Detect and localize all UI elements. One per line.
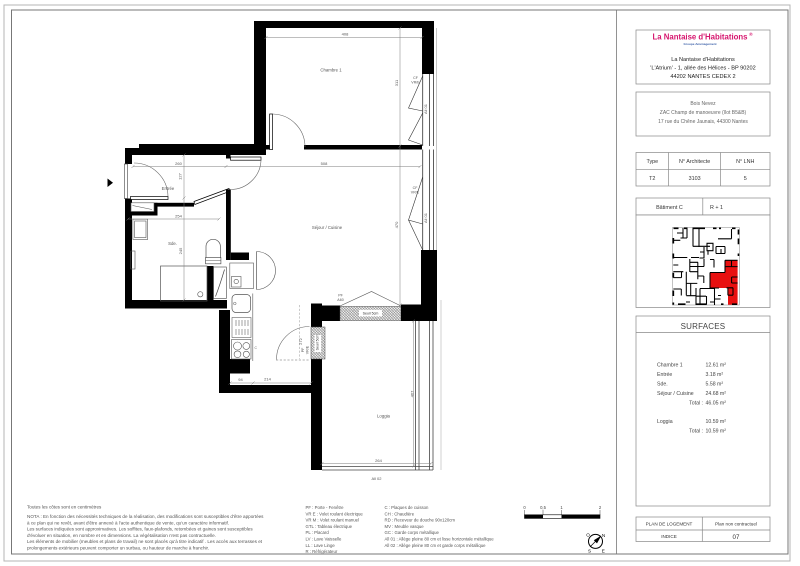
svg-text:N: N — [602, 533, 605, 538]
svg-text:R + 1: R + 1 — [710, 205, 723, 211]
svg-text:All 02: All 02 — [371, 476, 382, 481]
svg-text:311: 311 — [394, 79, 399, 86]
svg-text:Total :: Total : — [689, 400, 703, 406]
svg-text:All 01: All 01 — [423, 103, 428, 114]
svg-text:PLAN DE LOGEMENT: PLAN DE LOGEMENT — [646, 522, 693, 527]
svg-text:CF: CF — [413, 186, 419, 190]
svg-text:CF: CF — [413, 76, 419, 80]
svg-text:Seuil 5cm: Seuil 5cm — [316, 335, 320, 351]
svg-text:272: 272 — [298, 337, 303, 344]
svg-text:PF: PF — [301, 347, 305, 352]
svg-text:La Nantaise d'Habitations: La Nantaise d'Habitations — [652, 33, 748, 42]
svg-text:d'évoluer en situation, en nom: d'évoluer en situation, en nombre et en … — [27, 533, 216, 538]
svg-text:46.05 m²: 46.05 m² — [706, 400, 727, 406]
svg-text:467: 467 — [409, 390, 414, 397]
svg-text:LL : Lave Linge: LL : Lave Linge — [306, 543, 336, 548]
svg-text:0,5: 0,5 — [540, 505, 546, 510]
svg-text:'L'Atrium' - 1, allée des Héli: 'L'Atrium' - 1, allée des Hélices - BP 9… — [650, 66, 755, 72]
svg-text:VR/E: VR/E — [306, 345, 310, 354]
svg-text:R : Réfrigérateur: R : Réfrigérateur — [306, 549, 338, 554]
svg-text:Les éléments de mobilier (meub: Les éléments de mobilier (meubles et pla… — [27, 539, 263, 544]
svg-text:All 01 : Allège pleine 80 cm e: All 01 : Allège pleine 80 cm et lisse ho… — [385, 537, 495, 542]
svg-text:Entrée: Entrée — [162, 186, 175, 191]
svg-text:®: ® — [749, 31, 753, 38]
svg-text:VR/E: VR/E — [411, 81, 420, 85]
svg-text:Type: Type — [646, 159, 658, 165]
svg-text:12.61 m²: 12.61 m² — [706, 363, 727, 369]
svg-text:N° Architecte: N° Architecte — [679, 159, 710, 165]
svg-text:Chambre 1: Chambre 1 — [657, 363, 683, 369]
svg-text:PL : Placard: PL : Placard — [306, 530, 330, 535]
svg-text:5.58 m²: 5.58 m² — [706, 382, 724, 388]
svg-text:Toutes les côtes sont en centi: Toutes les côtes sont en centimètres — [27, 505, 102, 510]
svg-text:17 rue du Chêne Jaunais, 44300: 17 rue du Chêne Jaunais, 44300 Nantes — [658, 119, 748, 125]
svg-text:Plan non contractuel: Plan non contractuel — [715, 522, 757, 527]
svg-text:07: 07 — [733, 534, 740, 541]
svg-text:408: 408 — [342, 32, 349, 37]
svg-text:MV : Meuble vasque: MV : Meuble vasque — [385, 524, 425, 529]
svg-text:E: E — [602, 548, 605, 553]
svg-text:Sde.: Sde. — [168, 241, 177, 246]
svg-text:VR E : Volet roulant électriqu: VR E : Volet roulant électrique — [306, 511, 364, 516]
svg-text:214: 214 — [264, 377, 271, 382]
svg-text:Entrée: Entrée — [657, 372, 672, 378]
svg-text:10.59 m²: 10.59 m² — [706, 419, 727, 425]
svg-text:VR/E: VR/E — [411, 191, 420, 195]
svg-text:INDICE: INDICE — [661, 534, 677, 539]
svg-text:Total :: Total : — [689, 429, 703, 435]
svg-text:Séjour / Cuisine: Séjour / Cuisine — [657, 391, 694, 397]
svg-text:3.18 m²: 3.18 m² — [706, 372, 724, 378]
svg-text:N° LNH: N° LNH — [736, 159, 754, 165]
svg-text:GTL : Tableau électrique: GTL : Tableau électrique — [306, 524, 353, 529]
svg-text:Loggia: Loggia — [657, 419, 673, 425]
svg-text:ZAC Champ de manoeuvre (îlot B: ZAC Champ de manoeuvre (îlot B5&B) — [660, 110, 747, 116]
svg-text:Chambre 1: Chambre 1 — [320, 68, 342, 73]
svg-text:94: 94 — [238, 377, 243, 382]
svg-text:5: 5 — [744, 176, 747, 182]
svg-text:NOTA : En fonction des nécessi: NOTA : En fonction des nécessités techni… — [27, 514, 264, 519]
svg-text:254: 254 — [175, 214, 182, 219]
svg-text:245: 245 — [178, 247, 183, 254]
svg-text:3103: 3103 — [689, 176, 701, 182]
svg-text:O: O — [586, 533, 590, 538]
svg-text:Les surfaces indiquées sont ap: Les surfaces indiquées sont approximativ… — [27, 527, 253, 532]
svg-text:Loggia: Loggia — [377, 414, 391, 419]
svg-text:GC : Garde corps métallique: GC : Garde corps métallique — [385, 530, 440, 535]
svg-text:C : Plaques de cuisson: C : Plaques de cuisson — [385, 505, 430, 510]
svg-text:10.59 m²: 10.59 m² — [706, 429, 727, 435]
svg-text:PF : Porte - Fenêtre: PF : Porte - Fenêtre — [306, 505, 345, 510]
svg-text:127: 127 — [178, 172, 183, 179]
svg-text:Bois Nevez: Bois Nevez — [690, 101, 716, 107]
svg-text:CH : Chaudière: CH : Chaudière — [385, 511, 415, 516]
svg-text:264: 264 — [375, 458, 382, 463]
svg-text:T2: T2 — [649, 176, 655, 182]
svg-text:Seuil 5cm: Seuil 5cm — [363, 312, 379, 316]
svg-text:La Nantaise d'Habitations: La Nantaise d'Habitations — [671, 57, 735, 63]
svg-text:44202 NANTES CEDEX 2: 44202 NANTES CEDEX 2 — [670, 74, 735, 80]
svg-text:Groupe Aménagement: Groupe Aménagement — [683, 42, 716, 46]
svg-text:508: 508 — [321, 161, 328, 166]
svg-text:SURFACES: SURFACES — [681, 322, 726, 331]
svg-text:All 01: All 01 — [423, 212, 428, 223]
svg-text:S: S — [588, 548, 591, 553]
svg-text:All 02 : Allège pleine 80 cm e: All 02 : Allège pleine 80 cm et garde co… — [385, 543, 487, 548]
svg-text:Séjour / Cuisine: Séjour / Cuisine — [312, 225, 343, 230]
svg-text:LV : Lave Vaisselle: LV : Lave Vaisselle — [306, 537, 343, 542]
svg-text:A60: A60 — [337, 298, 343, 302]
svg-text:Bâtiment C: Bâtiment C — [656, 205, 683, 211]
svg-text:Sde.: Sde. — [657, 382, 668, 388]
svg-text:prolongements extérieurs peuve: prolongements extérieurs peuvent comport… — [27, 546, 209, 551]
svg-text:à ce plan qui ne revêt, avant: à ce plan qui ne revêt, avant d'être ann… — [27, 520, 229, 525]
svg-text:260: 260 — [175, 161, 182, 166]
svg-text:RD : Receveur de douche 90x120: RD : Receveur de douche 90x120cm — [385, 518, 456, 523]
svg-text:470: 470 — [394, 221, 399, 228]
svg-text:24.68 m²: 24.68 m² — [706, 391, 727, 397]
svg-text:VR M : Volet roulant manuel: VR M : Volet roulant manuel — [306, 518, 360, 523]
